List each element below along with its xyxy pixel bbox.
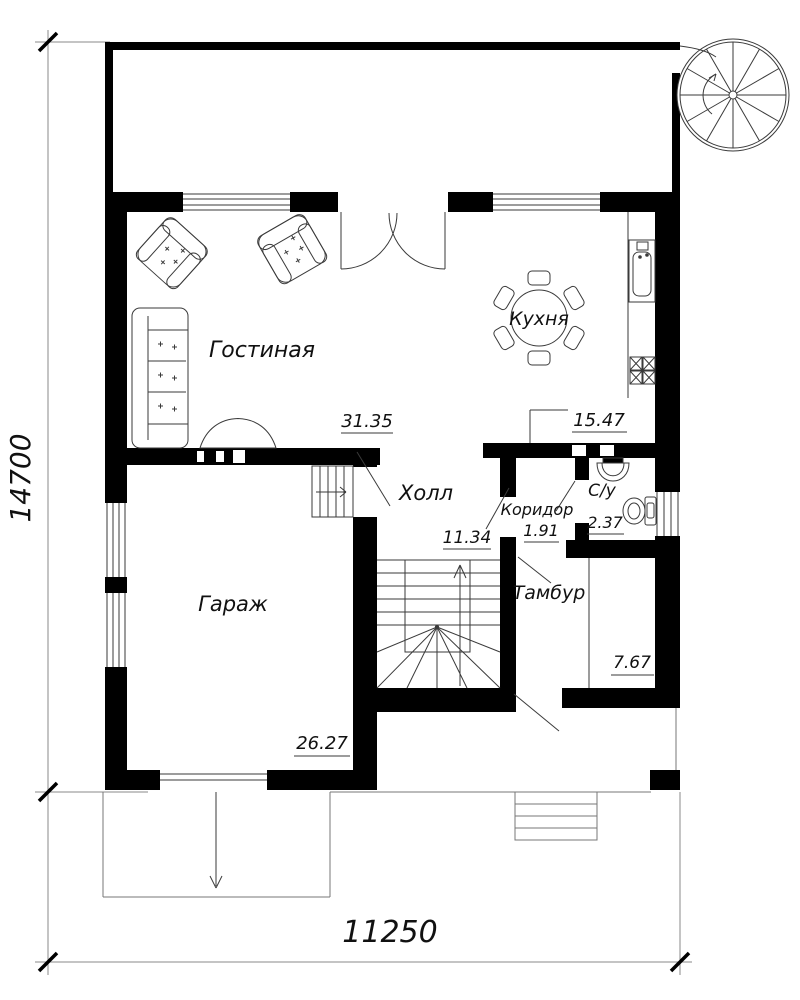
chimney-flue-2 [216, 451, 224, 462]
left-wall-pier [105, 577, 127, 593]
hall-label: Холл [398, 481, 453, 505]
top-wall-seg2 [290, 192, 338, 212]
garage-hall-wall-bottom [353, 517, 377, 770]
bathroom-area-value: 2.37 [587, 513, 623, 532]
vent-shaft-1 [572, 445, 586, 456]
living-hall-wall [127, 448, 380, 465]
terrace-top-wall [105, 42, 680, 50]
garage-area-value: 26.27 [296, 733, 348, 754]
kitchen-label: Кухня [509, 308, 569, 330]
right-wall-seg2 [655, 536, 680, 708]
living-room-label: Гостиная [209, 338, 315, 363]
right-wall-seg1 [655, 192, 680, 492]
left-wall-seg1 [105, 192, 127, 503]
bathroom-label: С/у [588, 481, 617, 501]
corridor-label: Коридор [501, 500, 574, 519]
porch-column [650, 770, 680, 790]
width-dimension-label: 11250 [342, 915, 437, 950]
spiral-staircase [677, 39, 789, 151]
floor-plan-canvas: 14700 11250 [0, 0, 800, 1000]
toilet [623, 497, 656, 525]
spiral-center-post [729, 91, 737, 99]
kitchen-corridor-wall [483, 443, 657, 458]
living-area-value: 31.35 [341, 411, 393, 432]
height-dimension-label: 14700 [4, 433, 37, 522]
vestibule-bottom-wall [562, 688, 680, 708]
garage-front-wall-right [267, 770, 377, 790]
stove [630, 357, 655, 384]
corridor-bathroom-wall-top [575, 458, 589, 480]
kitchen-area-value: 15.47 [573, 410, 625, 431]
vent-shaft-2 [600, 445, 614, 456]
garage-label: Гараж [198, 592, 268, 616]
chimney-flue-3 [233, 450, 245, 463]
garage-front-wall-left [105, 770, 160, 790]
corridor-area-value: 1.91 [523, 521, 559, 540]
hall-corridor-wall-top [500, 458, 516, 497]
terrace-left-wall [105, 50, 113, 192]
bathroom-vestibule-wall [566, 540, 657, 558]
hall-corridor-wall-bottom [500, 537, 516, 712]
chimney-flue-1 [197, 451, 204, 462]
hall-area-value: 11.34 [443, 528, 492, 548]
vestibule-area-value: 7.67 [613, 653, 651, 673]
vestibule-label: Тамбур [513, 582, 586, 604]
floor-plan-page: 14700 11250 [0, 0, 800, 1000]
top-wall-seg3 [448, 192, 493, 212]
